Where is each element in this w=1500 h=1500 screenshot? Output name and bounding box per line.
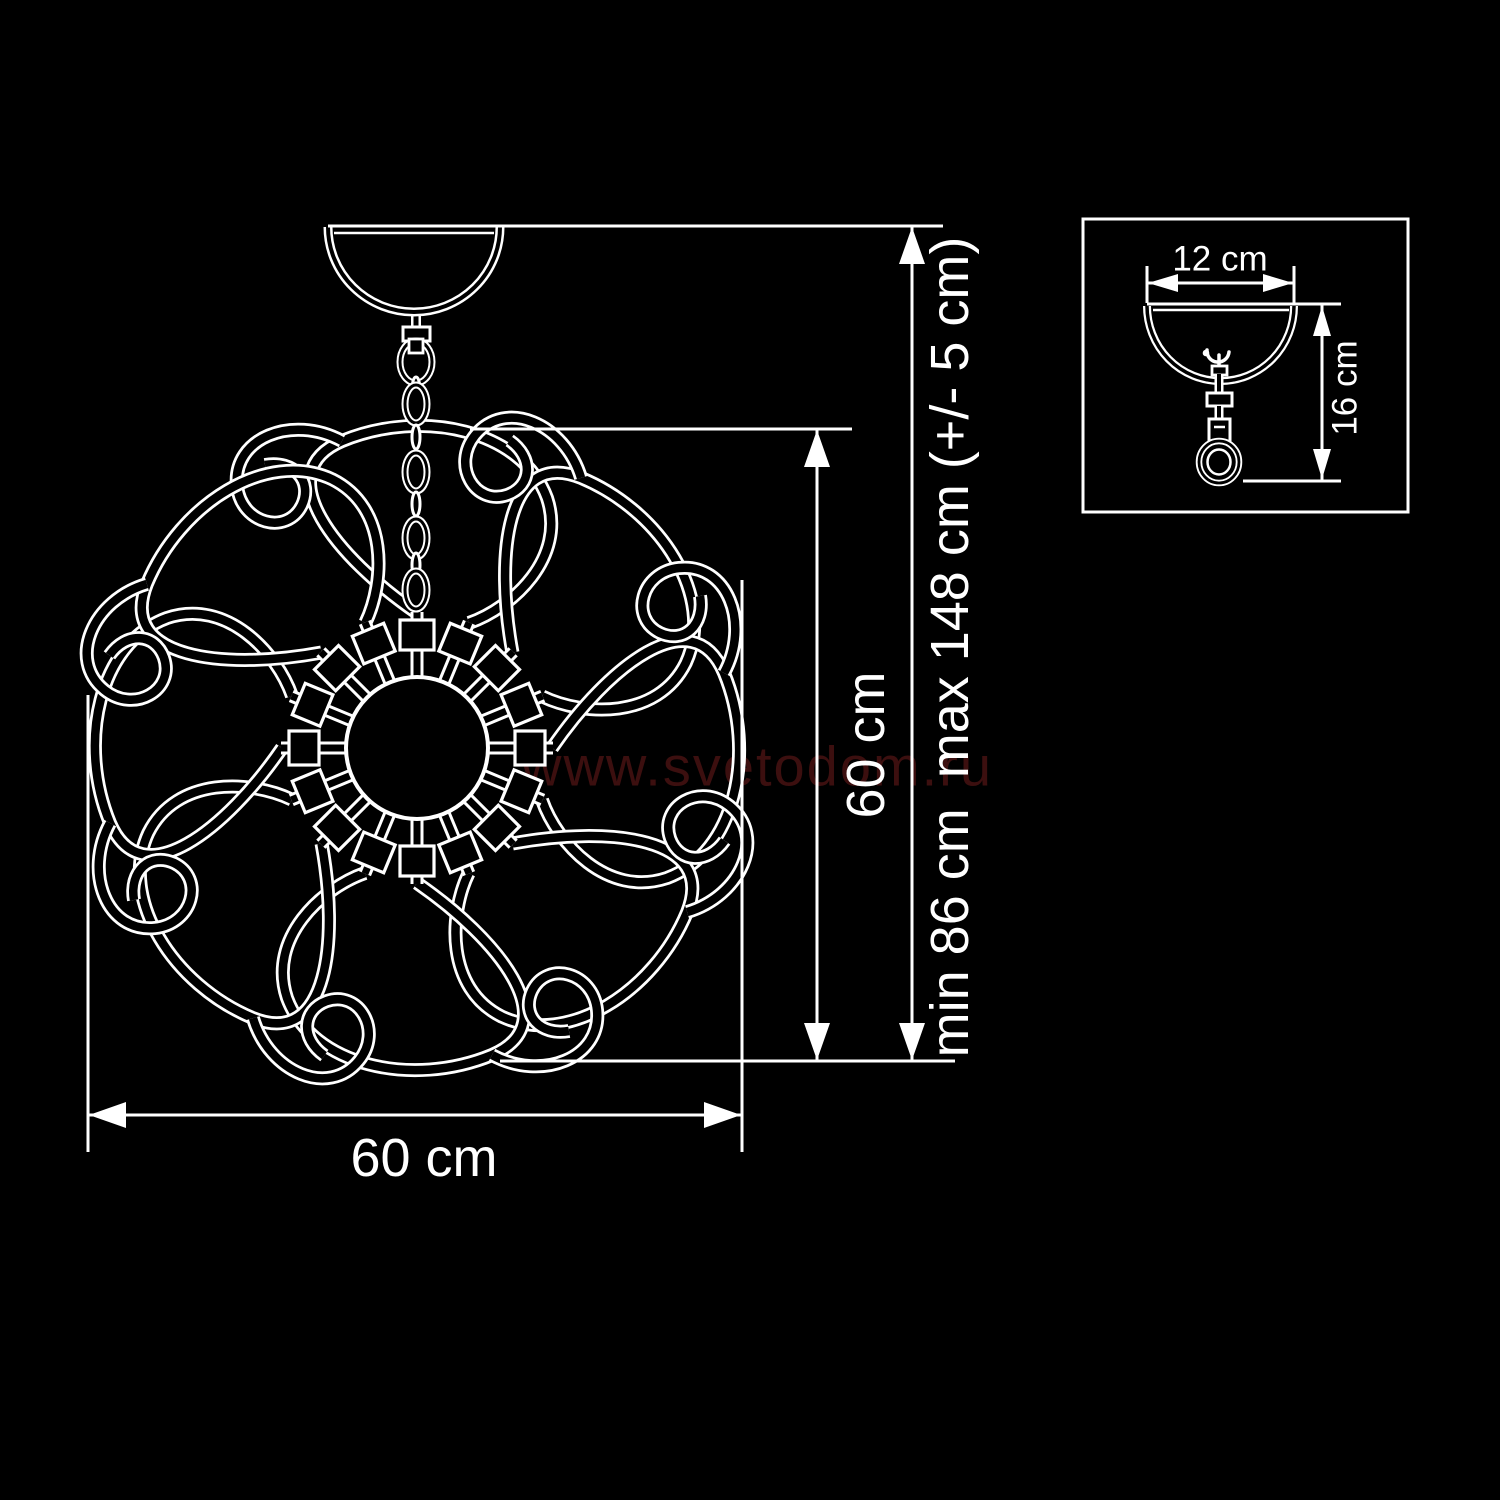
inset-height-label: 16 cm (1326, 340, 1365, 435)
inset-nut (1207, 393, 1232, 406)
center-hub (346, 677, 488, 819)
chandelier-dimension-diagram: www.svetodom.ru (0, 0, 1500, 1500)
height-label: 60 cm (836, 671, 896, 818)
width-label: 60 cm (350, 1128, 497, 1188)
diagram-canvas: www.svetodom.ru (0, 0, 1500, 1500)
carabiner-clasp (409, 339, 423, 353)
inset-width-label: 12 cm (1172, 240, 1267, 279)
suspension-height-label: min 86 cm max 148 cm (+/- 5 cm) (920, 237, 980, 1058)
